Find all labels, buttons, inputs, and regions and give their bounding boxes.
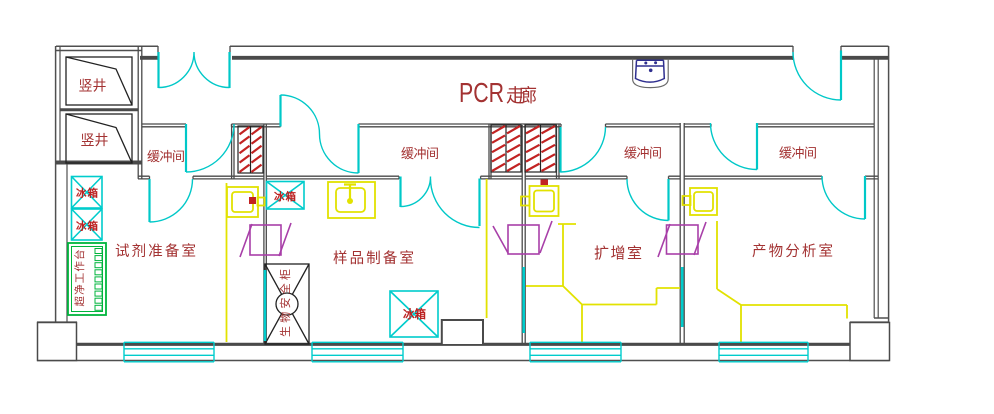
svg-text:走廊: 走廊 [506,85,537,106]
svg-text:缓冲间: 缓冲间 [624,146,662,161]
svg-text:竖井: 竖井 [79,78,107,94]
svg-text:冰箱: 冰箱 [403,307,427,321]
svg-text:冰箱: 冰箱 [76,220,99,233]
svg-text:缓冲间: 缓冲间 [401,146,439,161]
svg-text:缓冲间: 缓冲间 [147,149,185,164]
svg-text:冰箱: 冰箱 [274,190,297,203]
svg-text:冰箱: 冰箱 [76,187,99,200]
svg-text:样品制备室: 样品制备室 [333,250,414,267]
svg-text:生物安全柜: 生物安全柜 [278,269,292,337]
svg-text:PCR: PCR [459,77,504,108]
svg-text:竖井: 竖井 [81,132,109,148]
svg-text:试剂准备室: 试剂准备室 [115,243,196,260]
svg-text:缓冲间: 缓冲间 [779,146,817,161]
svg-text:扩增室: 扩增室 [594,245,642,262]
svg-text:产物分析室: 产物分析室 [752,243,833,260]
svg-text:超净工作台: 超净工作台 [73,250,86,307]
